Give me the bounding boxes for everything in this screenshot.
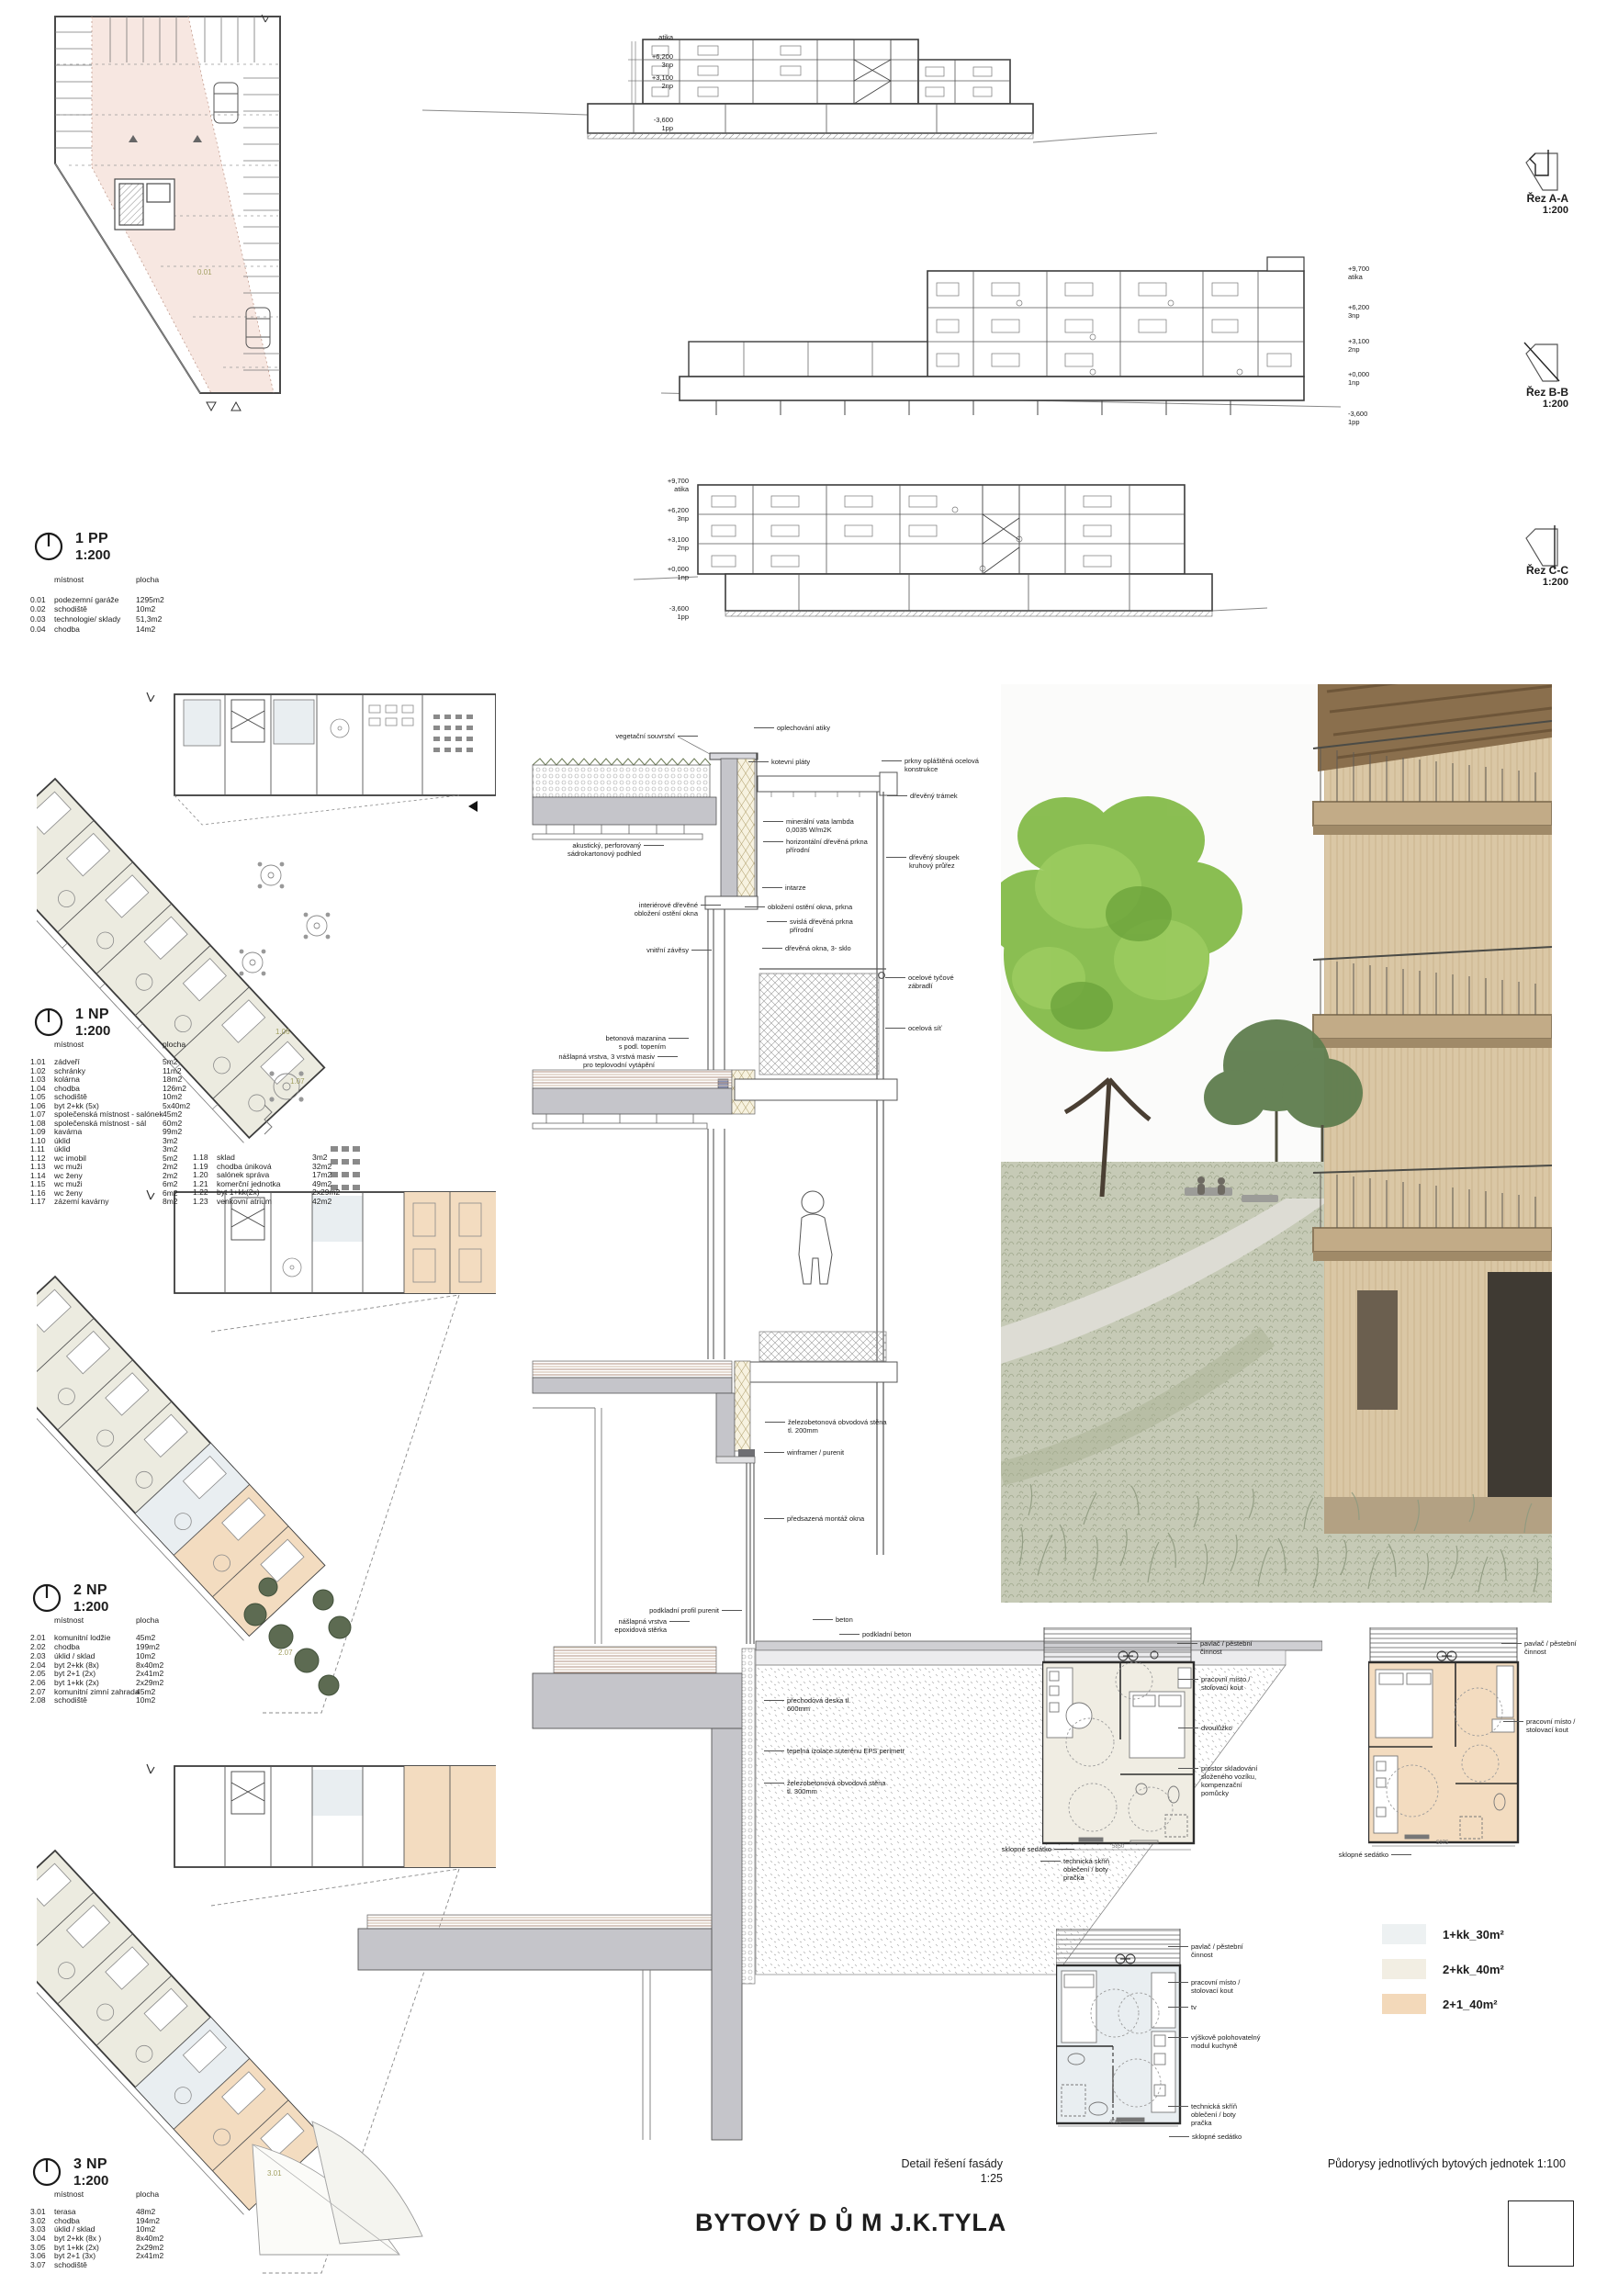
plan-1pp-header: 1 PP 1:200 — [33, 531, 110, 563]
unit-dim-width: 4000 — [1109, 2120, 1122, 2125]
section-scale: 1:200 — [1467, 577, 1568, 588]
annotation-label: +3,100 2np — [1348, 337, 1369, 354]
corner-box — [1508, 2200, 1574, 2267]
unit-plan-1kk: 8000 4000 — [1056, 1929, 1185, 2127]
column-room: místnost — [54, 1616, 136, 1626]
project-title: BYTOVÝ D Ů M J.K.TYLA — [695, 2209, 1006, 2237]
unit-dim-width: 5975 — [1436, 1840, 1449, 1846]
section-bb-drawing — [661, 248, 1350, 445]
clock-icon — [31, 2156, 62, 2188]
detail-caption-text: Detail řešení fasády — [826, 2156, 1003, 2171]
section-key-bb: Řez B-B 1:200 — [1467, 386, 1568, 410]
plan-title: 2 NP — [73, 1582, 108, 1599]
plan-1np-legend: místnostplocha 1.01zádveří5m21.02schránk… — [30, 1041, 219, 1207]
annotation-label: +6,200 3np — [1348, 303, 1369, 320]
plan-scale: 1:200 — [75, 1023, 110, 1039]
plan-title: 1 PP — [75, 531, 110, 547]
section-name: Řez A-A — [1467, 192, 1568, 205]
section-name: Řez B-B — [1467, 386, 1568, 399]
units-caption-text: Půdorysy jednotlivých bytových jednotek … — [1185, 2156, 1566, 2171]
unit-plan-21: 7120 5975 — [1368, 1627, 1523, 1848]
plan-title: 1 NP — [75, 1007, 110, 1023]
annotation-label: +9,700 atika — [1348, 264, 1369, 281]
section-scale: 1:200 — [1467, 399, 1568, 410]
column-room: místnost — [54, 1041, 163, 1050]
unit-legend-row: 2+1_40m² — [1382, 1994, 1504, 2014]
render-image — [1001, 684, 1552, 1603]
section-key-cc: Řez C-C 1:200 — [1467, 564, 1568, 588]
annotation-label: +0,000 1np — [1348, 370, 1369, 387]
section-key-icon-bb — [1517, 341, 1568, 387]
plan-scale: 1:200 — [73, 1599, 108, 1615]
clock-icon — [31, 1582, 62, 1614]
plan-2np-header: 2 NP 1:200 — [31, 1582, 108, 1615]
unit-legend: 1+kk_30m² 2+kk_40m² 2+1_40m² — [1382, 1924, 1504, 2029]
column-room: místnost — [54, 575, 136, 585]
section-cc-drawing — [634, 473, 1267, 652]
annotation-label: -3,600 1pp — [1348, 410, 1367, 426]
legend-label: 2+1_40m² — [1443, 1998, 1498, 2011]
section-key-aa: Řez A-A 1:200 — [1467, 192, 1568, 216]
plan-1pp-drawing — [28, 9, 294, 418]
section-scale: 1:200 — [1467, 205, 1568, 216]
plan-1np-header: 1 NP 1:200 — [33, 1007, 110, 1039]
detail-caption: Detail řešení fasády 1:25 — [826, 2156, 1003, 2187]
plan-scale: 1:200 — [75, 547, 110, 563]
unit-dim-width: 5850 — [1112, 1844, 1125, 1850]
plan-3np-header: 3 NP 1:200 — [31, 2156, 108, 2189]
presentation-board: Řez A-A 1:200 Řez B-B 1:200 Řez C-C 1:20… — [0, 0, 1607, 2296]
legend-swatch — [1382, 1924, 1426, 1944]
legend-swatch — [1382, 1994, 1426, 2014]
column-area: plocha — [136, 575, 191, 585]
unit-legend-row: 2+kk_40m² — [1382, 1959, 1504, 1979]
legend-label: 1+kk_30m² — [1443, 1928, 1504, 1941]
detail-caption-scale: 1:25 — [826, 2171, 1003, 2186]
plan-scale: 1:200 — [73, 2173, 108, 2189]
legend-label: 2+kk_40m² — [1443, 1963, 1504, 1976]
legend-swatch — [1382, 1959, 1426, 1979]
clock-icon — [33, 531, 64, 562]
plan-1np-legend-col2: 1.18sklad3m21.19chodba úniková32m21.20sa… — [193, 1154, 364, 1206]
units-caption: Půdorysy jednotlivých bytových jednotek … — [1185, 2156, 1566, 2171]
annotation-label: pracovní místo / stolovací kout — [1526, 1717, 1575, 1734]
plan-2np-legend: místnostplocha 2.01komunitní lodžie45m22… — [30, 1616, 191, 1705]
unit-plan-2kk: 7250 5850 — [1042, 1627, 1198, 1852]
section-aa-drawing — [422, 23, 1157, 220]
section-name: Řez C-C — [1467, 564, 1568, 577]
column-area: plocha — [136, 2190, 191, 2200]
clock-icon — [33, 1007, 64, 1038]
unit-legend-row: 1+kk_30m² — [1382, 1924, 1504, 1944]
section-key-icon-aa — [1517, 150, 1568, 196]
column-area: plocha — [163, 1041, 219, 1050]
plan-1pp-legend: místnostplocha 0.01podezemní garáže1295m… — [30, 575, 191, 635]
plan-title: 3 NP — [73, 2156, 108, 2173]
column-room: místnost — [54, 2190, 136, 2200]
plan-3np-legend: místnostplocha 3.01terasa48m23.02chodba1… — [30, 2190, 191, 2269]
column-area: plocha — [136, 1616, 191, 1626]
annotation-label: pavlač / pěstební činnost — [1524, 1639, 1577, 1656]
